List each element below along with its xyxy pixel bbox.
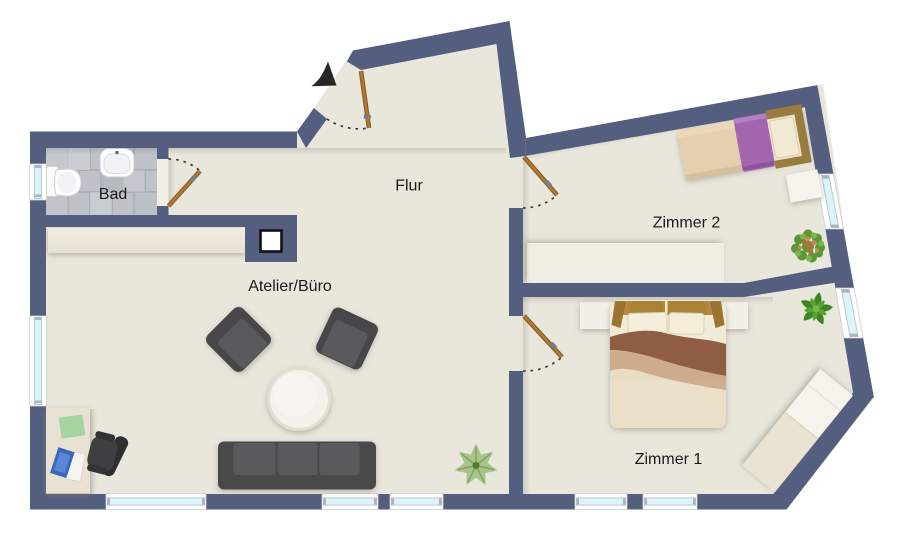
svg-text:Zimmer 2: Zimmer 2 xyxy=(653,215,721,232)
svg-text:Flur: Flur xyxy=(395,178,423,195)
svg-text:Bad: Bad xyxy=(99,186,127,203)
svg-text:Atelier/Büro: Atelier/Büro xyxy=(248,278,332,295)
svg-text:Zimmer 1: Zimmer 1 xyxy=(635,451,703,468)
